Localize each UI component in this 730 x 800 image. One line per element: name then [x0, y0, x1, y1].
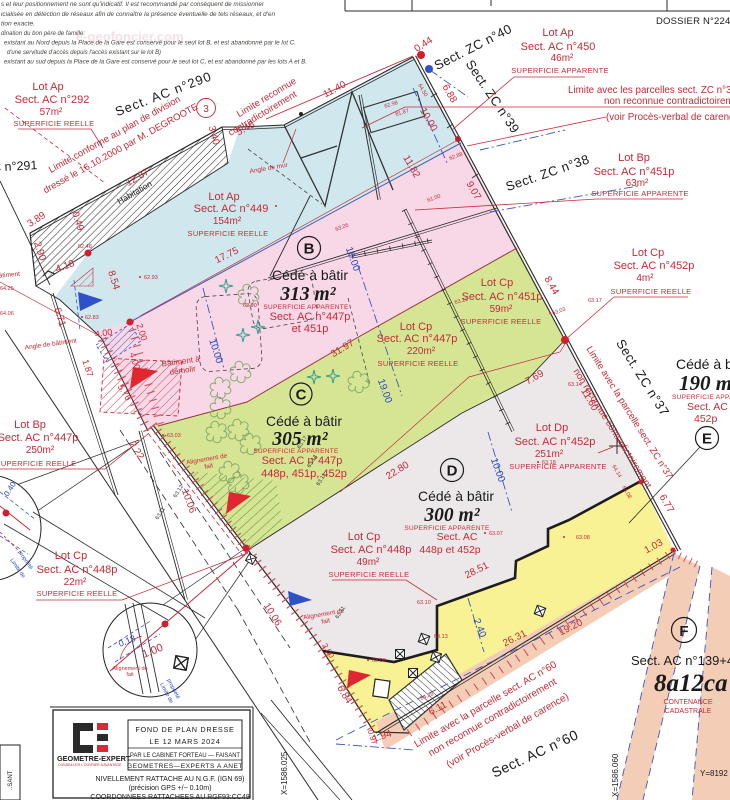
svg-text:63.08: 63.08 [372, 658, 386, 664]
svg-text:452p: 452p [694, 413, 718, 425]
svg-text:SUPERFICIE REELLE: SUPERFICIE REELLE [611, 287, 692, 296]
svg-text:Sect. AC n°448p: Sect. AC n°448p [37, 564, 118, 576]
svg-text:d'une servitude d'accès depuis: d'une servitude d'accès depuis l'accès e… [7, 50, 161, 56]
svg-text:SUPERFICIE REELLE: SUPERFICIE REELLE [0, 459, 76, 468]
svg-text:Sect. AC n°447p: Sect. AC n°447p [270, 311, 351, 323]
svg-text:190 m: 190 m [679, 371, 730, 395]
svg-text:Cédé à bât: Cédé à bât [676, 356, 730, 372]
svg-text:49m²: 49m² [357, 557, 380, 568]
svg-text:SUPERFICIE REELLE: SUPERFICIE REELLE [37, 589, 118, 598]
svg-text:C: C [296, 387, 307, 404]
svg-text:SUPERFICIE APPARENTE: SUPERFICIE APPARENTE [263, 304, 349, 311]
svg-text:LE 12 MARS 2024: LE 12 MARS 2024 [150, 737, 221, 746]
svg-text:Sect. AC: Sect. AC [687, 401, 728, 413]
svg-text:B: B [304, 241, 315, 258]
svg-text:Lot Ap: Lot Ap [208, 191, 239, 203]
svg-text:63.17: 63.17 [588, 298, 602, 304]
svg-text:Lot Cp: Lot Cp [400, 321, 432, 333]
svg-text:57m²: 57m² [40, 107, 63, 118]
svg-text:CADASTRALE: CADASTRALE [665, 708, 712, 715]
svg-text:Sect. AC: Sect. AC [437, 531, 478, 543]
svg-text:Sect. AC n°451p: Sect. AC n°451p [462, 291, 543, 303]
svg-text:63.14: 63.14 [568, 382, 582, 388]
svg-text:220m²: 220m² [407, 346, 436, 357]
svg-text:SUPERFICIE REELLE: SUPERFICIE REELLE [378, 359, 459, 368]
svg-text:63.03: 63.03 [167, 433, 181, 439]
svg-text:Lot Ap: Lot Ap [32, 81, 63, 93]
svg-text:448p, 451p, 452p: 448p, 451p, 452p [261, 468, 347, 480]
svg-text:SUPERFICIE REELLE: SUPERFICIE REELLE [461, 317, 542, 326]
svg-text:313 m²: 313 m² [279, 284, 336, 305]
svg-text:3: 3 [203, 104, 209, 115]
svg-text:PAR LE CABINET FORTEAU — FAISA: PAR LE CABINET FORTEAU — FAISANT [130, 752, 240, 759]
svg-text:Cédé à bâtir: Cédé à bâtir [418, 488, 494, 504]
svg-text:COORDONNEES RATTACHEES AU RGF9: COORDONNEES RATTACHEES AU RGF93:CC49 [90, 794, 249, 800]
svg-text:62.48: 62.48 [78, 244, 92, 250]
svg-text:Sect. AC n°292: Sect. AC n°292 [15, 94, 90, 106]
svg-text:FOND DE PLAN DRESSE: FOND DE PLAN DRESSE [135, 725, 234, 734]
svg-text:DOSSIER N°22400: DOSSIER N°22400 [656, 16, 730, 27]
svg-text:46m²: 46m² [551, 53, 574, 64]
svg-text:Lot Cp: Lot Cp [481, 277, 513, 289]
svg-text:Sect. AC n°447p: Sect. AC n°447p [0, 432, 78, 444]
svg-text:(voir Procès-verbal de carence: (voir Procès-verbal de carence) [606, 112, 730, 123]
svg-text:Sect. AC n°447p: Sect. AC n°447p [377, 333, 458, 345]
svg-text:NIVELLEMENT RATTACHE AU N.G.F.: NIVELLEMENT RATTACHE AU N.G.F. (IGN 69) [96, 776, 245, 783]
svg-text:Lot Bp: Lot Bp [14, 419, 46, 431]
svg-text:8a12ca: 8a12ca [654, 670, 728, 697]
svg-text:..SANT: ..SANT [8, 770, 14, 790]
svg-text:Sect. AC n°452p: Sect. AC n°452p [614, 260, 695, 272]
svg-text:X=1586.025: X=1586.025 [280, 751, 289, 795]
svg-text:62.93: 62.93 [144, 275, 158, 281]
svg-text:63m²: 63m² [626, 178, 649, 189]
svg-text:icialisée en détection de rése: icialisée en détection de réseaux afin d… [1, 12, 276, 18]
svg-text:Sect. AC n°448p: Sect. AC n°448p [331, 544, 412, 556]
svg-text:63.07: 63.07 [489, 531, 503, 537]
svg-text:Lot Cp: Lot Cp [348, 531, 380, 543]
svg-text:Lot Ap: Lot Ap [542, 27, 573, 39]
svg-text:250m²: 250m² [26, 445, 55, 456]
svg-text:Sect. AC n°449: Sect. AC n°449 [194, 203, 269, 215]
svg-text:Sect. AC n°447p: Sect. AC n°447p [262, 455, 343, 467]
svg-text:CONTENANCE: CONTENANCE [663, 699, 712, 706]
svg-text:non reconnue contradictoiremen: non reconnue contradictoirement [604, 96, 730, 107]
svg-text:SUPERFICIE REELLE: SUPERFICIE REELLE [188, 229, 269, 238]
svg-text:22m²: 22m² [64, 577, 87, 588]
svg-text:62.83: 62.83 [85, 315, 99, 321]
svg-text:GEOMETRES—EXPERTS A ANET: GEOMETRES—EXPERTS A ANET [127, 763, 243, 770]
svg-text:SUPERFICIE APPARENTE: SUPERFICIE APPARENTE [509, 462, 607, 471]
svg-text:63.13: 63.13 [434, 634, 448, 640]
svg-text:Sect. AC n°452p: Sect. AC n°452p [515, 436, 596, 448]
svg-text:59m²: 59m² [490, 304, 513, 315]
svg-text:AC n°291: AC n°291 [0, 158, 38, 175]
svg-text:s et leur positionnement ne so: s et leur positionnement ne sont qu'indi… [1, 2, 265, 8]
svg-text:(précision GPS +/− 0.10m): (précision GPS +/− 0.10m) [129, 785, 212, 792]
svg-text:63.18: 63.18 [542, 460, 556, 466]
svg-text:64.25: 64.25 [0, 286, 14, 292]
svg-text:Y=8192: Y=8192 [700, 769, 728, 778]
svg-text:tion exacte.: tion exacte. [1, 22, 35, 28]
svg-text:SUPERFICIE APPARENTE: SUPERFICIE APPARENTE [511, 66, 609, 75]
svg-text:Sect. AC n°451p: Sect. AC n°451p [594, 166, 675, 178]
svg-text:251m²: 251m² [535, 449, 564, 460]
svg-text:fait: fait [126, 672, 134, 678]
svg-text:SUPERFICIE APPARENTE: SUPERFICIE APPARENTE [591, 189, 689, 198]
svg-text:300 m²: 300 m² [423, 505, 480, 526]
svg-text:E: E [702, 431, 712, 448]
svg-text:Cédé à bâtir: Cédé à bâtir [272, 267, 348, 283]
svg-text:D: D [447, 463, 458, 480]
svg-text:et 451p: et 451p [292, 323, 329, 335]
svg-text:SUPERFICIE REELLE: SUPERFICIE REELLE [329, 570, 410, 579]
svg-text:Sect. AC n°139+4: Sect. AC n°139+4 [631, 653, 730, 668]
svg-text:CONSEILLER L'OUVRIER DAVANTAGE: CONSEILLER L'OUVRIER DAVANTAGE [58, 763, 122, 767]
svg-text:4m²: 4m² [636, 273, 654, 284]
svg-text:Lot Cp: Lot Cp [55, 550, 87, 562]
svg-text:e-geofoncier.com: e-geofoncier.com [76, 29, 184, 44]
svg-text:62.90: 62.90 [243, 303, 257, 309]
svg-text:existant au sud depuis la Plac: existant au sud depuis la Place de la Ga… [4, 60, 307, 66]
svg-text:154m²: 154m² [213, 216, 242, 227]
svg-text:Limite avec les parcelles sect: Limite avec les parcelles sect. ZC n°38-… [568, 85, 730, 96]
svg-text:63.08: 63.08 [576, 535, 590, 541]
svg-text:F: F [679, 623, 688, 640]
svg-text:GEOMETRE-EXPERT: GEOMETRE-EXPERT [57, 754, 131, 763]
svg-text:dination du bon père de famill: dination du bon père de famille: [1, 31, 85, 37]
svg-text:SUPERFICIE APPAREN: SUPERFICIE APPAREN [672, 394, 730, 401]
svg-text:Lot Bp: Lot Bp [618, 152, 650, 164]
svg-text:SUPERFICIE REELLE: SUPERFICIE REELLE [14, 119, 95, 128]
svg-text:64.06: 64.06 [0, 311, 14, 317]
svg-text:63.10: 63.10 [417, 600, 431, 606]
svg-text:X=1586.060: X=1586.060 [611, 753, 620, 797]
svg-text:SUPERFICIE APPARENTE: SUPERFICIE APPARENTE [253, 448, 339, 455]
svg-text:Cédé à bâtir: Cédé à bâtir [266, 413, 342, 429]
svg-text:Lot Dp: Lot Dp [536, 422, 568, 434]
svg-text:448p et 452p: 448p et 452p [419, 544, 480, 556]
svg-text:Lot Cp: Lot Cp [632, 247, 664, 259]
svg-text:Sect. AC n°450: Sect. AC n°450 [521, 41, 596, 53]
